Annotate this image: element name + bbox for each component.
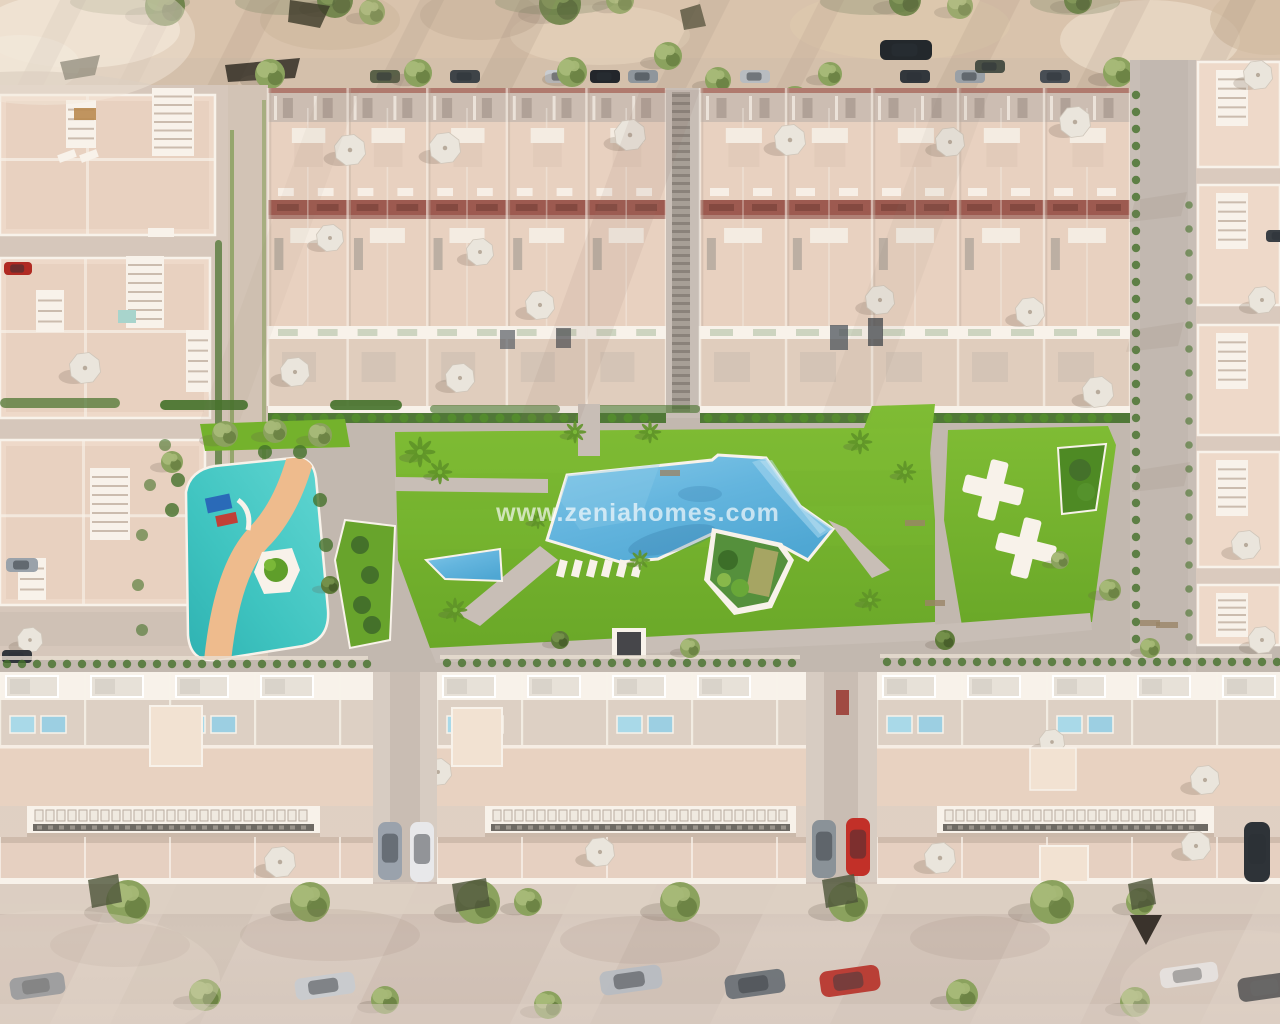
svg-text:www.zeniahomes.com: www.zeniahomes.com	[495, 499, 780, 527]
